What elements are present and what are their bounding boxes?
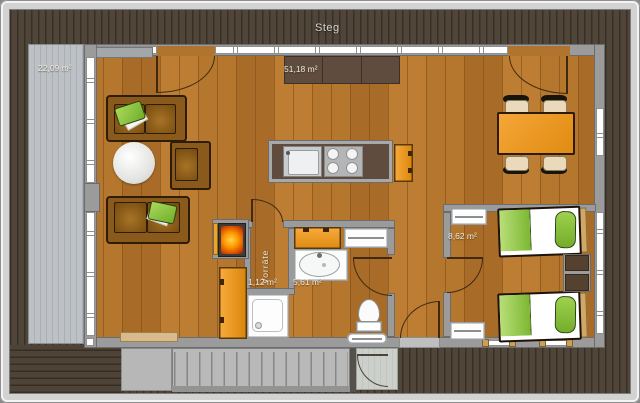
- armchair-cushion: [175, 148, 198, 181]
- storage-cabinet: [219, 267, 247, 339]
- sink-basin: [288, 150, 319, 175]
- door-leaf: [156, 56, 158, 93]
- nightstand-drawer: [565, 255, 589, 271]
- door-leaf: [353, 257, 392, 259]
- window: [215, 46, 508, 54]
- fire-glow: [221, 226, 243, 254]
- cabinet-handle: [220, 317, 224, 323]
- basin-faucet: [317, 253, 322, 258]
- towel-radiator: [347, 333, 387, 344]
- cart-handle: [408, 168, 412, 173]
- dining-table: [497, 112, 575, 155]
- bedroom-shelf: [450, 322, 485, 340]
- stove-burner: [346, 162, 358, 174]
- cabinet-divider: [361, 56, 362, 84]
- armchair: [170, 141, 211, 190]
- window: [86, 338, 94, 346]
- door-leaf: [438, 301, 440, 338]
- stair-steps: [174, 352, 348, 386]
- fireplace-surround: [212, 219, 249, 259]
- radiator-line: [352, 338, 382, 340]
- cart-handle: [408, 151, 412, 156]
- nightstand-drawer: [565, 274, 589, 291]
- deck-label: Steg: [315, 23, 340, 34]
- wall-pier: [84, 183, 100, 212]
- window-front: [86, 57, 95, 183]
- nightstand: [563, 254, 591, 292]
- window-front: [86, 212, 95, 336]
- dining-chair-seat: [505, 156, 529, 171]
- window-marker-tick: [482, 339, 489, 347]
- dining-chair-seat: [543, 156, 567, 171]
- door-leaf: [357, 354, 388, 356]
- bed-blanket: [499, 209, 531, 251]
- door-opening: [157, 46, 215, 56]
- sideboard: [96, 47, 153, 58]
- terrace-area-label: 22,09 m²: [38, 64, 72, 73]
- terrace: [28, 44, 84, 344]
- sofa-cushion: [145, 104, 176, 134]
- coffee-table: [113, 142, 155, 184]
- bathroom-vanity: [294, 227, 341, 249]
- door-opening: [508, 46, 570, 56]
- pantry-name-label: Vorräte: [261, 230, 270, 284]
- stove-cooktop: [324, 146, 363, 177]
- window: [596, 108, 604, 156]
- door-leaf: [566, 56, 568, 93]
- shelf-line: [454, 330, 481, 332]
- fireplace-firebox: [218, 223, 246, 257]
- stairs: [172, 348, 350, 392]
- bed-pillow: [555, 211, 577, 248]
- cabinet-handle: [220, 279, 224, 285]
- shower-drain: [255, 322, 262, 329]
- shelf-line: [455, 216, 483, 218]
- kitchen-sink: [283, 146, 322, 177]
- bed: [497, 290, 588, 340]
- bedroom-shelf: [451, 208, 487, 225]
- floor-plan: Steg 22,09 m²: [0, 0, 640, 403]
- bed-blanket: [499, 294, 531, 336]
- kitchen-cart: [394, 144, 413, 182]
- shelf-line: [348, 237, 384, 239]
- bathroom-area-label: 5,61 m²: [293, 278, 322, 287]
- wall: [387, 293, 395, 337]
- toilet-tank: [356, 321, 382, 332]
- stove-burner: [346, 148, 358, 160]
- sink-faucet: [286, 151, 290, 155]
- window: [596, 212, 604, 334]
- entry-landing: [121, 348, 172, 391]
- stair-edge: [172, 386, 350, 392]
- stove-burner: [327, 162, 339, 174]
- living-area-label: 51,18 m²: [284, 65, 318, 74]
- bed-pillow: [555, 296, 577, 333]
- vanity-handle: [303, 228, 309, 232]
- vanity-handle: [323, 228, 329, 232]
- terrace-door-threshold: [120, 332, 178, 342]
- door-leaf: [251, 199, 253, 222]
- fireplace-frame: [213, 223, 218, 255]
- deck-corner-planks: [10, 345, 121, 393]
- window-marker-tick: [566, 339, 573, 347]
- cabinet-divider: [322, 56, 323, 84]
- bed: [497, 205, 588, 255]
- bathroom-shelf: [344, 228, 388, 248]
- bedroom-area-label: 8,62 m²: [448, 232, 477, 241]
- sofa: [106, 196, 190, 244]
- shower: [247, 294, 289, 338]
- entrance-opening: [399, 337, 440, 348]
- sofa-cushion: [114, 202, 147, 233]
- pantry-area-label: 1,12 m²: [248, 278, 277, 287]
- basin-drain: [322, 263, 326, 267]
- stove-burner: [327, 148, 339, 160]
- door-leaf: [447, 257, 483, 259]
- wall: [387, 228, 395, 255]
